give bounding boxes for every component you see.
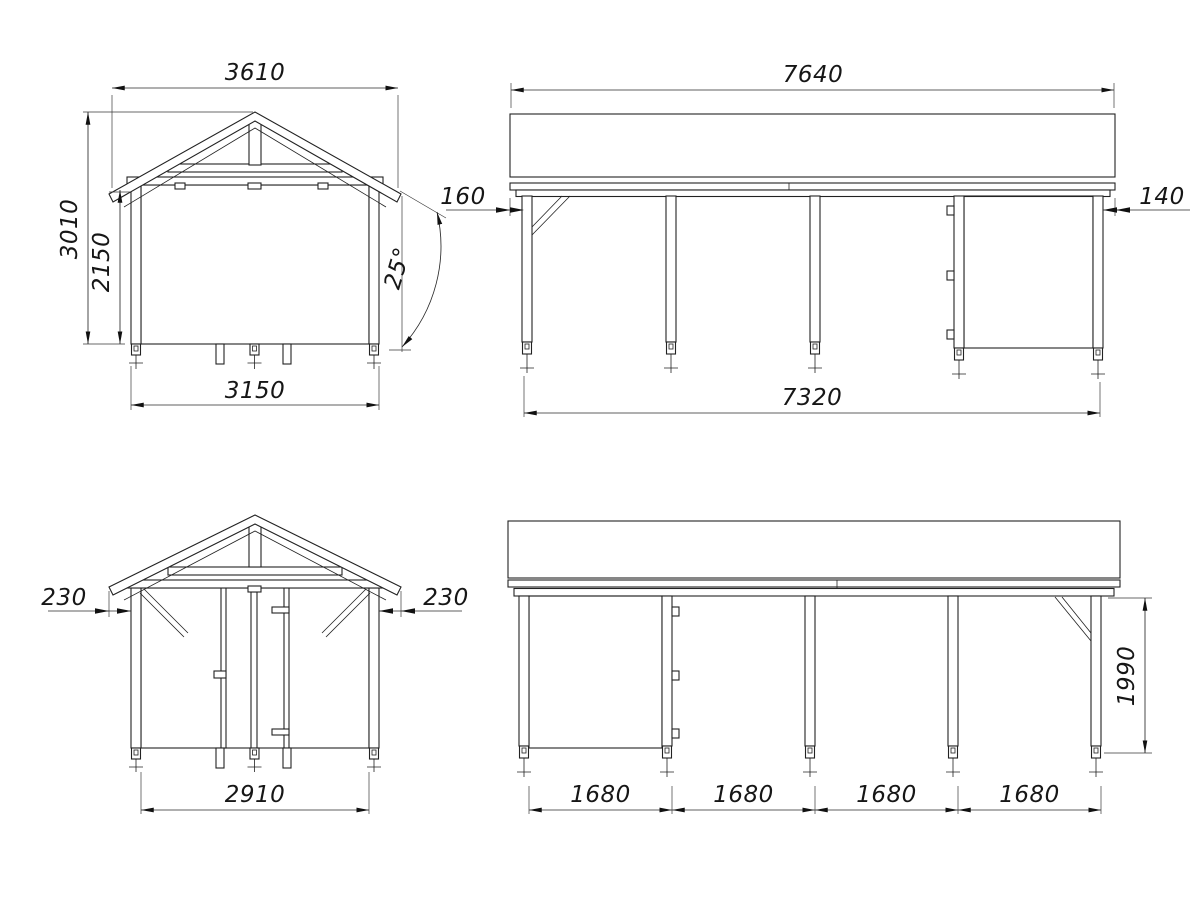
tie-beam: [168, 567, 342, 575]
center-stubs: [216, 748, 291, 772]
dimension-roof-angle: 25°: [380, 191, 446, 352]
center-stubs: [216, 344, 291, 369]
knee-brace: [1055, 597, 1091, 641]
purlin-tab: [248, 586, 261, 592]
roof-panel: [508, 521, 1120, 578]
king-post: [249, 524, 261, 567]
roof-panel: [510, 114, 1115, 177]
dimension-inner-width: 2910: [141, 772, 369, 814]
front-elevation-view: 3610 3010 2150 3150 25°: [57, 60, 446, 410]
post-foot: [129, 748, 143, 772]
dimension-overhang-right: 140: [1103, 184, 1190, 216]
drawing-sheet: 3610 3010 2150 3150 25°: [0, 0, 1200, 900]
dimension-base-width: 3150: [131, 366, 379, 410]
corner-post: [131, 185, 141, 344]
dim-rear-overhang-left: 230: [41, 585, 86, 611]
eave-beam: [514, 589, 1114, 597]
dimension-roof-length: 7640: [511, 62, 1114, 108]
post: [666, 196, 676, 342]
dim-bay-2: 1680: [713, 782, 774, 808]
dim-rear-overhang-right: 230: [423, 585, 468, 611]
door-stile: [221, 588, 226, 748]
dimension-post-span: 7320: [524, 376, 1100, 417]
fascia-board: [508, 580, 1120, 587]
door-elevation-view: 230 230 2910: [41, 515, 468, 814]
dim-bay-4: 1680: [999, 782, 1060, 808]
post-foot: [129, 344, 143, 369]
dim-rear-inner-width: 2910: [225, 782, 286, 808]
post-foot: [367, 748, 381, 772]
dimension-bays: 1680 1680 1680 1680: [529, 782, 1101, 814]
post-feet: [517, 746, 1103, 777]
dim-front-base-width: 3150: [225, 378, 286, 404]
dim-front-total-height: 3010: [57, 199, 83, 260]
door-handle: [214, 671, 226, 678]
dim-front-roof-angle: 25°: [380, 244, 417, 292]
shed-siding: [529, 596, 662, 748]
shed-door-hinges: [672, 607, 679, 738]
dim-side-overhang-left: 160: [440, 184, 485, 210]
dim-bay-3: 1680: [856, 782, 917, 808]
corner-post: [369, 588, 379, 748]
dim-front-wall-height: 2150: [89, 232, 115, 293]
dimension-wall-height: 2150: [89, 190, 130, 344]
post: [948, 596, 958, 746]
side-elevation-b-view: 1680 1680 1680 1680 1990: [508, 521, 1152, 814]
side-elevation-a-view: 7640 160 140 7320: [440, 62, 1190, 417]
knee-brace: [140, 589, 188, 637]
knee-brace: [322, 589, 370, 637]
shed-door-hinges: [947, 206, 954, 339]
technical-drawing: 3610 3010 2150 3150 25°: [0, 0, 1200, 900]
shed-post: [954, 196, 964, 348]
shed-post: [519, 596, 529, 746]
post: [1091, 596, 1101, 746]
door-hinge: [272, 607, 289, 613]
fascia-board: [510, 183, 1115, 190]
dimension-post-height: 1990: [1104, 598, 1152, 753]
dim-side-post-span: 7320: [782, 385, 843, 411]
corner-post: [131, 588, 141, 748]
door-center-strip: [251, 592, 257, 748]
shed-post: [662, 596, 672, 746]
corner-post: [369, 185, 379, 344]
post: [810, 196, 820, 342]
door-hinge: [272, 729, 289, 735]
post-foot: [367, 344, 381, 369]
shed-siding: [964, 196, 1093, 348]
shed-post: [1093, 196, 1103, 348]
dim-side-roof-length: 7640: [783, 62, 844, 88]
wall-siding: [141, 185, 369, 344]
knee-brace: [532, 196, 570, 235]
post: [805, 596, 815, 746]
dim-bay-1: 1680: [570, 782, 631, 808]
dim-side-overhang-right: 140: [1139, 184, 1184, 210]
post: [522, 196, 532, 342]
dim-front-roof-width: 3610: [225, 60, 286, 86]
dim-post-height: 1990: [1114, 646, 1140, 707]
